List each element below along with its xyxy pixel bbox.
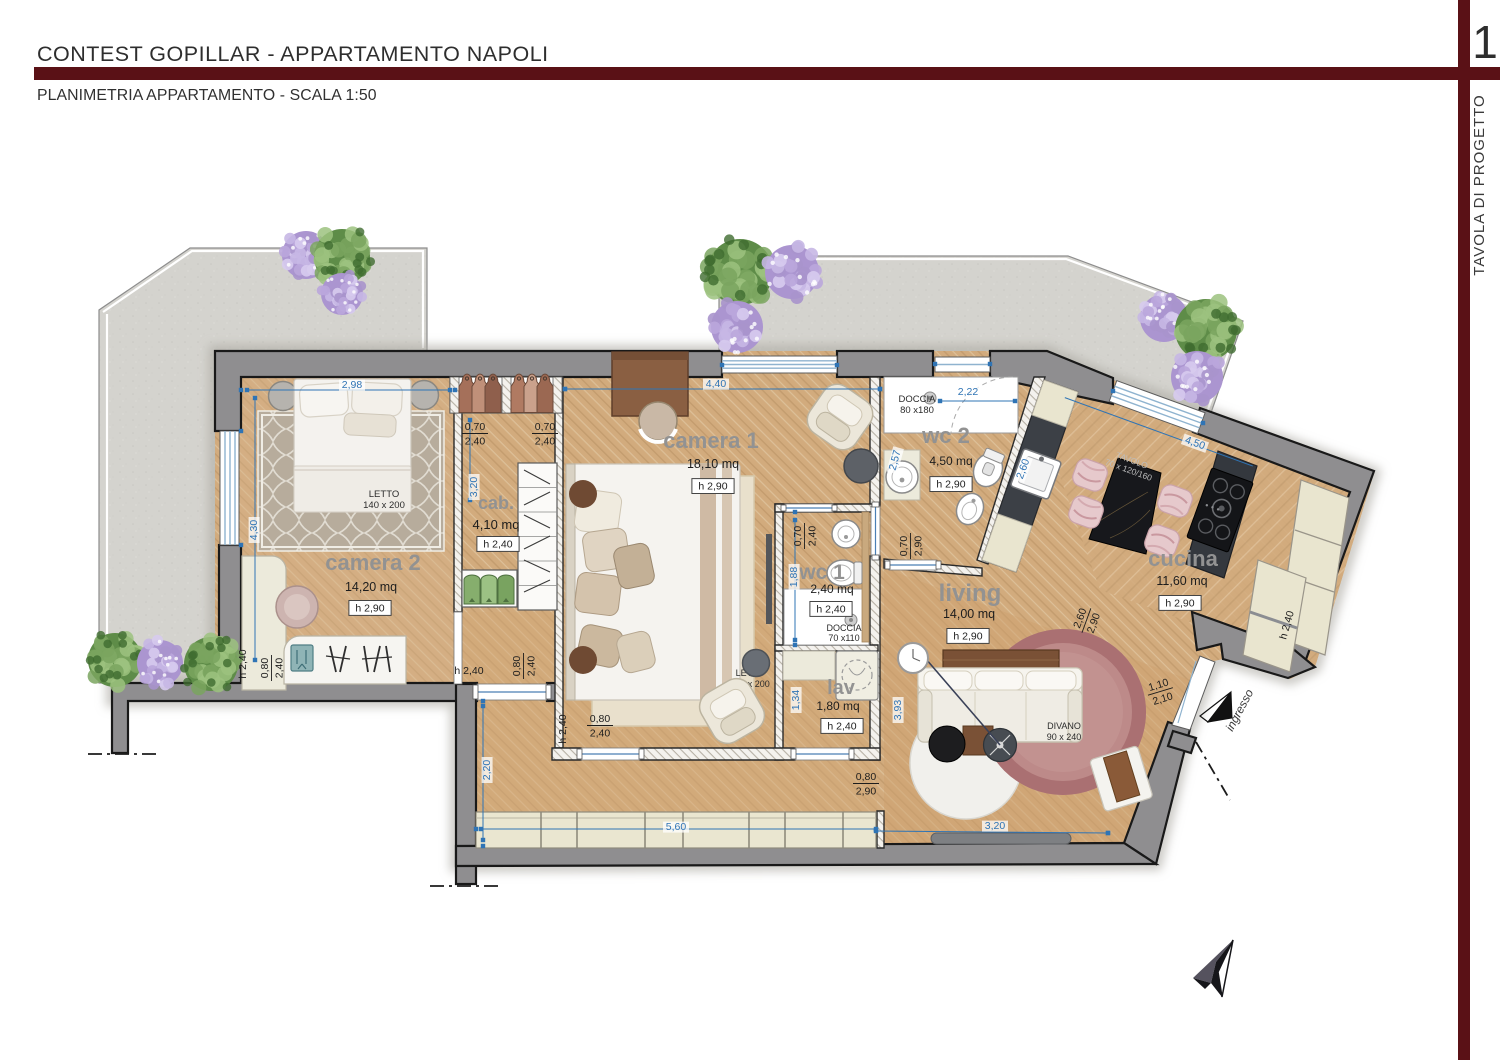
svg-text:0,70: 0,70 — [535, 421, 556, 433]
svg-text:2,40: 2,40 — [465, 436, 486, 448]
svg-text:h 2,90: h 2,90 — [355, 603, 384, 615]
svg-text:h 2,40: h 2,40 — [237, 649, 249, 678]
svg-text:h 2,90: h 2,90 — [936, 479, 965, 491]
svg-text:h 2,40: h 2,40 — [557, 714, 569, 743]
svg-text:h 2,90: h 2,90 — [1165, 598, 1194, 610]
svg-text:14,20 mq: 14,20 mq — [345, 580, 397, 594]
svg-text:90 x 240: 90 x 240 — [1047, 732, 1082, 742]
svg-text:2,40: 2,40 — [526, 656, 538, 677]
svg-text:cab.: cab. — [478, 493, 514, 513]
svg-text:0,70: 0,70 — [898, 536, 910, 557]
svg-text:PLANIMETRIA APPARTAMENTO - SCA: PLANIMETRIA APPARTAMENTO - SCALA 1:50 — [37, 87, 377, 104]
svg-text:living: living — [939, 580, 1002, 607]
svg-text:DOCCIA: DOCCIA — [899, 394, 937, 405]
svg-text:4,40: 4,40 — [706, 378, 727, 390]
svg-text:0,70: 0,70 — [465, 421, 486, 433]
svg-text:140 x 200: 140 x 200 — [363, 500, 405, 511]
svg-text:h 2,40: h 2,40 — [483, 539, 512, 551]
svg-text:14,00 mq: 14,00 mq — [943, 607, 995, 621]
svg-text:camera 1: camera 1 — [663, 428, 758, 453]
svg-text:CONTEST GOPILLAR - APPARTAMENT: CONTEST GOPILLAR - APPARTAMENTO NAPOLI — [37, 42, 549, 66]
svg-text:2,98: 2,98 — [342, 379, 363, 391]
svg-text:h 2,40: h 2,40 — [827, 721, 856, 733]
svg-text:4,10 mq: 4,10 mq — [473, 517, 520, 532]
svg-text:4,50 mq: 4,50 mq — [929, 454, 972, 468]
svg-text:2,20: 2,20 — [481, 760, 493, 781]
svg-text:2,40: 2,40 — [274, 658, 286, 679]
svg-text:wc 1: wc 1 — [798, 561, 845, 584]
svg-text:2,90: 2,90 — [856, 786, 877, 798]
svg-text:2,40: 2,40 — [590, 728, 611, 740]
svg-text:DOCCIA: DOCCIA — [826, 623, 861, 633]
svg-text:3,20: 3,20 — [468, 477, 480, 498]
svg-text:2,40: 2,40 — [535, 436, 556, 448]
svg-text:1,80 mq: 1,80 mq — [816, 699, 859, 713]
svg-text:0,80: 0,80 — [259, 658, 271, 679]
svg-text:0,80: 0,80 — [856, 771, 877, 783]
svg-text:h 2,40: h 2,40 — [454, 665, 483, 677]
svg-text:3,20: 3,20 — [985, 820, 1006, 832]
svg-text:cucina: cucina — [1148, 546, 1218, 571]
svg-text:2,40: 2,40 — [807, 526, 819, 547]
svg-text:0,80: 0,80 — [511, 656, 523, 677]
svg-text:2,22: 2,22 — [958, 386, 979, 398]
svg-text:DIVANO: DIVANO — [1047, 721, 1081, 731]
svg-text:0,70: 0,70 — [792, 526, 804, 547]
svg-text:1,88: 1,88 — [788, 567, 800, 588]
svg-text:camera 2: camera 2 — [325, 550, 420, 575]
svg-text:h 2,90: h 2,90 — [953, 631, 982, 643]
svg-text:80 x180: 80 x180 — [900, 405, 934, 416]
svg-text:1,34: 1,34 — [790, 690, 802, 711]
svg-text:3,93: 3,93 — [892, 700, 904, 721]
svg-text:18,10 mq: 18,10 mq — [687, 457, 739, 471]
svg-text:h 2,90: h 2,90 — [698, 481, 727, 493]
svg-text:wc 2: wc 2 — [921, 423, 970, 448]
svg-text:11,60 mq: 11,60 mq — [1156, 574, 1207, 588]
svg-text:lav: lav — [827, 677, 856, 699]
svg-text:h 2,40: h 2,40 — [816, 604, 845, 616]
svg-text:LETTO: LETTO — [369, 489, 399, 500]
svg-text:2,90: 2,90 — [913, 536, 925, 557]
svg-text:0,80: 0,80 — [590, 713, 611, 725]
svg-text:TAVOLA DI PROGETTO: TAVOLA DI PROGETTO — [1471, 94, 1488, 275]
svg-text:5,60: 5,60 — [666, 821, 687, 833]
svg-text:2,40 mq: 2,40 mq — [810, 582, 853, 596]
svg-text:1: 1 — [1472, 16, 1498, 68]
svg-text:4,30: 4,30 — [248, 520, 260, 541]
svg-text:70 x110: 70 x110 — [828, 633, 859, 643]
